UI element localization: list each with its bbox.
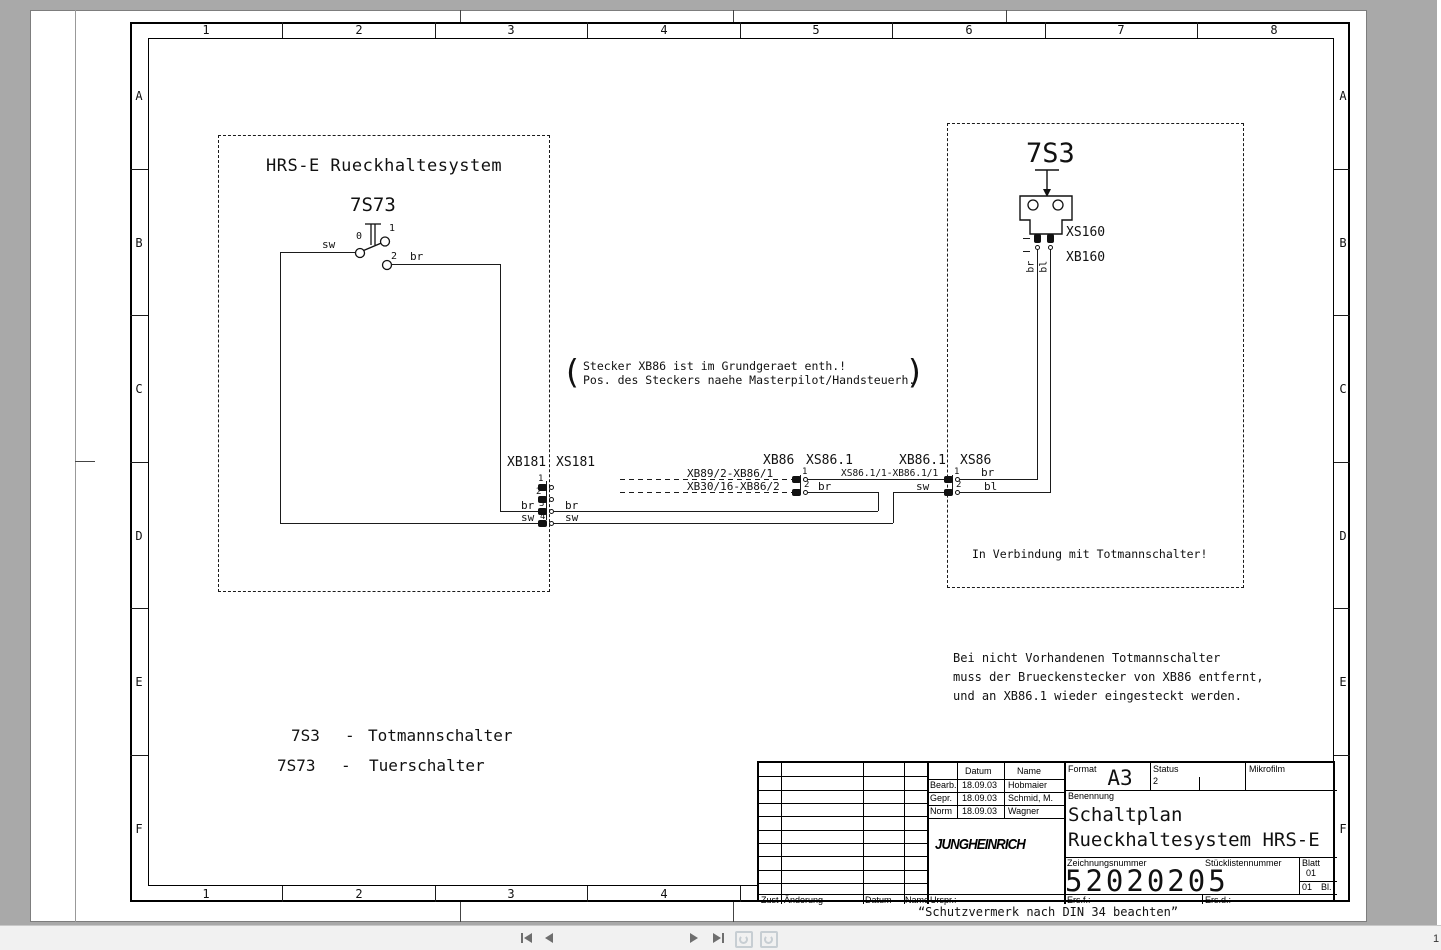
next-view-button[interactable] bbox=[760, 931, 778, 948]
tb-line bbox=[1199, 777, 1200, 790]
x86-dash2-label: XB30/16-XB86/2 bbox=[687, 481, 780, 494]
tb-line bbox=[759, 830, 927, 831]
wire-br bbox=[878, 492, 879, 511]
pin-contact bbox=[944, 476, 960, 483]
drawing-title-line2: Rueckhaltesystem HRS-E bbox=[1068, 830, 1320, 852]
tb-line bbox=[1299, 857, 1300, 894]
grid-tick bbox=[130, 462, 148, 463]
fold-mark bbox=[733, 902, 734, 922]
wire-br bbox=[500, 264, 501, 511]
x181-xs-label: XS181 bbox=[556, 456, 595, 471]
wire-br bbox=[391, 264, 500, 265]
benennung-label: Benennung bbox=[1068, 792, 1114, 802]
appr-datum-header: Datum bbox=[965, 767, 992, 777]
wire-br bbox=[960, 479, 1038, 480]
legend-dash: - bbox=[345, 727, 355, 745]
drawing-title-line1: Schaltplan bbox=[1068, 805, 1182, 827]
tb-line bbox=[759, 776, 927, 777]
note-stecker-line2: Pos. des Steckers naehe Masterpilot/Hand… bbox=[583, 374, 915, 387]
tb-line bbox=[759, 883, 927, 884]
fold-mark bbox=[1006, 10, 1007, 22]
tb-line bbox=[759, 843, 927, 844]
fold-mark bbox=[733, 10, 734, 22]
ersd-label: Ers.d.: bbox=[1205, 896, 1231, 906]
grid-tick bbox=[435, 886, 436, 902]
tb-line bbox=[1004, 763, 1005, 818]
tb-line bbox=[927, 763, 929, 904]
pin-mark bbox=[1023, 238, 1030, 239]
x86-xs-label: XS86.1 bbox=[806, 454, 853, 469]
appr-row-name: Wagner bbox=[1008, 807, 1039, 817]
pdf-viewer: 1 2 3 4 5 6 7 8 1 2 3 4 A B C D E F A B … bbox=[0, 0, 1441, 950]
grid-row-label: C bbox=[131, 382, 147, 396]
legend-ref: 7S73 bbox=[277, 757, 316, 775]
rev-aenderung-label: Änderung bbox=[784, 896, 823, 906]
grid-row-label: A bbox=[131, 89, 147, 103]
grid-col-label: 6 bbox=[958, 23, 980, 37]
s3-xs-label: XS160 bbox=[1066, 226, 1105, 241]
first-page-button[interactable] bbox=[516, 929, 536, 947]
grid-tick bbox=[1197, 22, 1198, 38]
pin-contact bbox=[792, 489, 808, 496]
tb-line bbox=[759, 816, 927, 817]
grid-tick bbox=[892, 22, 893, 38]
appr-row-date: 18.09.03 bbox=[962, 794, 997, 804]
grid-tick bbox=[1334, 462, 1350, 463]
x86-dash1-label: XB89/2-XB86/1 bbox=[687, 468, 773, 481]
wire-bl bbox=[960, 492, 1051, 493]
grid-row-label: B bbox=[1335, 236, 1351, 250]
note-stecker-line1: Stecker XB86 ist im Grundgeraet enth.! bbox=[583, 360, 846, 373]
tb-line bbox=[927, 818, 1064, 819]
totmann-unit-box bbox=[947, 123, 1244, 588]
last-page-button[interactable] bbox=[708, 929, 728, 947]
rev-zust-label: Zust bbox=[761, 896, 779, 906]
appr-row-name: Hobmaier bbox=[1008, 781, 1047, 791]
grid-col-label: 2 bbox=[348, 887, 370, 901]
grid-row-label: A bbox=[1335, 89, 1351, 103]
grid-row-label: D bbox=[131, 529, 147, 543]
mikrofilm-label: Mikrofilm bbox=[1249, 765, 1285, 775]
s73-wire-br-label: br bbox=[410, 251, 423, 264]
tb-line bbox=[1150, 763, 1151, 790]
wire-sw bbox=[280, 252, 281, 523]
pin-contact bbox=[1047, 234, 1054, 250]
fold-mark bbox=[75, 461, 95, 462]
wire-br bbox=[554, 511, 878, 512]
grid-col-label: 2 bbox=[348, 23, 370, 37]
note-verbindung: In Verbindung mit Totmannschalter! bbox=[972, 548, 1207, 561]
grid-col-label: 4 bbox=[653, 887, 675, 901]
note-paren-open: ( bbox=[566, 352, 579, 391]
tb-line bbox=[957, 763, 958, 818]
zeichnungsnummer-value: 52020205 bbox=[1065, 865, 1229, 898]
wire-sw bbox=[280, 523, 538, 524]
blatt-total: 01 bbox=[1302, 883, 1312, 893]
x86-link-label: XS86.1/1-XB86.1/1 bbox=[841, 469, 938, 480]
tb-line bbox=[759, 856, 927, 857]
blatt-suffix: Bl. bbox=[1321, 883, 1332, 893]
x86-xb-label: XB86 bbox=[763, 454, 794, 469]
x861-br-label: br bbox=[981, 467, 994, 480]
x181-sw-left: sw bbox=[521, 512, 534, 525]
blatt-value: 01 bbox=[1306, 869, 1316, 879]
tb-line bbox=[759, 870, 927, 871]
grid-tick bbox=[1334, 608, 1350, 609]
first-page-icon bbox=[521, 933, 523, 943]
grid-row-label: F bbox=[131, 822, 147, 836]
x181-xb-label: XB181 bbox=[507, 456, 546, 471]
note-paren-close: ) bbox=[908, 352, 921, 391]
schutzvermerk-note: “Schutzvermerk nach DIN 34 beachten” bbox=[917, 906, 1179, 920]
pin-contact bbox=[538, 508, 554, 515]
appr-row-label: Gepr. bbox=[930, 794, 952, 804]
grid-row-label: E bbox=[1335, 675, 1351, 689]
grid-col-label: 8 bbox=[1263, 23, 1285, 37]
s73-terminal-2: 2 bbox=[391, 251, 397, 263]
scrollbar-track[interactable] bbox=[1437, 0, 1441, 925]
tb-line bbox=[759, 790, 927, 791]
grid-col-label: 3 bbox=[500, 887, 522, 901]
x861-xb-label: XB86.1 bbox=[899, 454, 946, 469]
wire-br bbox=[1037, 248, 1038, 479]
legend-name: Tuerschalter bbox=[369, 757, 485, 775]
grid-row-label: F bbox=[1335, 822, 1351, 836]
grid-tick bbox=[282, 22, 283, 38]
grid-row-label: B bbox=[131, 236, 147, 250]
wire-sw bbox=[893, 492, 894, 523]
status-label: Status bbox=[1153, 765, 1179, 775]
page-fold-line bbox=[75, 10, 76, 922]
x861-sw-label: sw bbox=[916, 481, 929, 494]
legend-dash: - bbox=[341, 757, 351, 775]
title-block: Zust Änderung Datum Name Datum Name Bear… bbox=[757, 761, 1335, 902]
grid-tick bbox=[130, 315, 148, 316]
rev-datum-label: Datum bbox=[865, 896, 892, 906]
last-page-icon bbox=[713, 933, 721, 943]
previous-page-icon bbox=[545, 933, 553, 943]
grid-row-label: C bbox=[1335, 382, 1351, 396]
grid-col-label: 1 bbox=[195, 23, 217, 37]
grid-col-label: 3 bbox=[500, 23, 522, 37]
pin-contact bbox=[1034, 234, 1041, 250]
x86-br-label: br bbox=[818, 481, 831, 494]
grid-col-label: 1 bbox=[195, 887, 217, 901]
wire-bl bbox=[1050, 248, 1051, 492]
pin-contact bbox=[944, 489, 960, 496]
x181-pin1: 1 bbox=[538, 474, 543, 484]
grid-tick bbox=[1334, 315, 1350, 316]
appr-row-date: 18.09.03 bbox=[962, 807, 997, 817]
appr-name-header: Name bbox=[1017, 767, 1041, 777]
tb-line bbox=[759, 894, 1337, 895]
grid-row-label: E bbox=[131, 675, 147, 689]
grid-tick bbox=[740, 886, 741, 902]
note-bottom-line1: Bei nicht Vorhandenen Totmannschalter bbox=[953, 652, 1220, 666]
grid-row-label: D bbox=[1335, 529, 1351, 543]
s3-xb-label: XB160 bbox=[1066, 251, 1105, 266]
pin-contact bbox=[538, 484, 554, 491]
grid-tick bbox=[282, 886, 283, 902]
pin-contact bbox=[538, 496, 554, 503]
note-bottom-line3: und an XB86.1 wieder eingesteckt werden. bbox=[953, 690, 1242, 704]
s73-terminal-0: 0 bbox=[356, 231, 362, 243]
next-page-icon bbox=[690, 933, 698, 943]
tb-line bbox=[759, 803, 927, 804]
pin-contact bbox=[792, 476, 808, 483]
pin-contact bbox=[538, 520, 554, 527]
grid-col-label: 7 bbox=[1110, 23, 1132, 37]
grid-tick bbox=[1334, 755, 1350, 756]
viewer-toolbar: 1 / 1 1 bbox=[0, 925, 1441, 950]
s73-label: 7S73 bbox=[350, 195, 396, 217]
s3-wire-bl-label: bl bbox=[1038, 259, 1050, 275]
s73-terminal-1: 1 bbox=[389, 223, 395, 235]
format-value: A3 bbox=[1092, 766, 1148, 790]
grid-tick bbox=[740, 22, 741, 38]
page-count-label: 1 bbox=[1433, 933, 1439, 945]
wire-sw bbox=[280, 252, 356, 253]
s73-wire-sw-label: sw bbox=[322, 239, 335, 252]
previous-page-button[interactable] bbox=[542, 929, 556, 947]
hrs-box-title: HRS-E Rueckhaltesystem bbox=[266, 157, 502, 177]
note-bottom-line2: muss der Brueckenstecker von XB86 entfer… bbox=[953, 671, 1264, 685]
appr-row-label: Bearb. bbox=[930, 781, 957, 791]
grid-col-label: 5 bbox=[805, 23, 827, 37]
fold-mark bbox=[460, 10, 461, 22]
grid-tick bbox=[435, 22, 436, 38]
door-switch-symbol bbox=[340, 215, 410, 277]
stuecklistennummer-label: Stücklistennummer bbox=[1205, 859, 1282, 869]
appr-row-label: Norm bbox=[930, 807, 952, 817]
s3-wire-br-label: br bbox=[1025, 259, 1037, 275]
legend-ref: 7S3 bbox=[291, 727, 320, 745]
wire-sw bbox=[554, 523, 893, 524]
tb-line bbox=[1245, 763, 1246, 790]
grid-tick bbox=[130, 169, 148, 170]
pin-mark bbox=[1023, 251, 1030, 252]
grid-col-label: 4 bbox=[653, 23, 675, 37]
appr-row-name: Schmid, M. bbox=[1008, 794, 1053, 804]
grid-tick bbox=[1045, 22, 1046, 38]
grid-tick bbox=[587, 886, 588, 902]
jungheinrich-logo: JUNGHEINRICH bbox=[935, 836, 1025, 853]
status-value: 2 bbox=[1153, 777, 1158, 787]
legend-name: Totmannschalter bbox=[368, 727, 513, 745]
grid-tick bbox=[1334, 169, 1350, 170]
grid-tick bbox=[130, 755, 148, 756]
grid-tick bbox=[587, 22, 588, 38]
grid-tick bbox=[130, 608, 148, 609]
next-page-button[interactable] bbox=[687, 929, 701, 947]
previous-view-button[interactable] bbox=[735, 931, 753, 948]
appr-row-date: 18.09.03 bbox=[962, 781, 997, 791]
fold-mark bbox=[460, 902, 461, 922]
